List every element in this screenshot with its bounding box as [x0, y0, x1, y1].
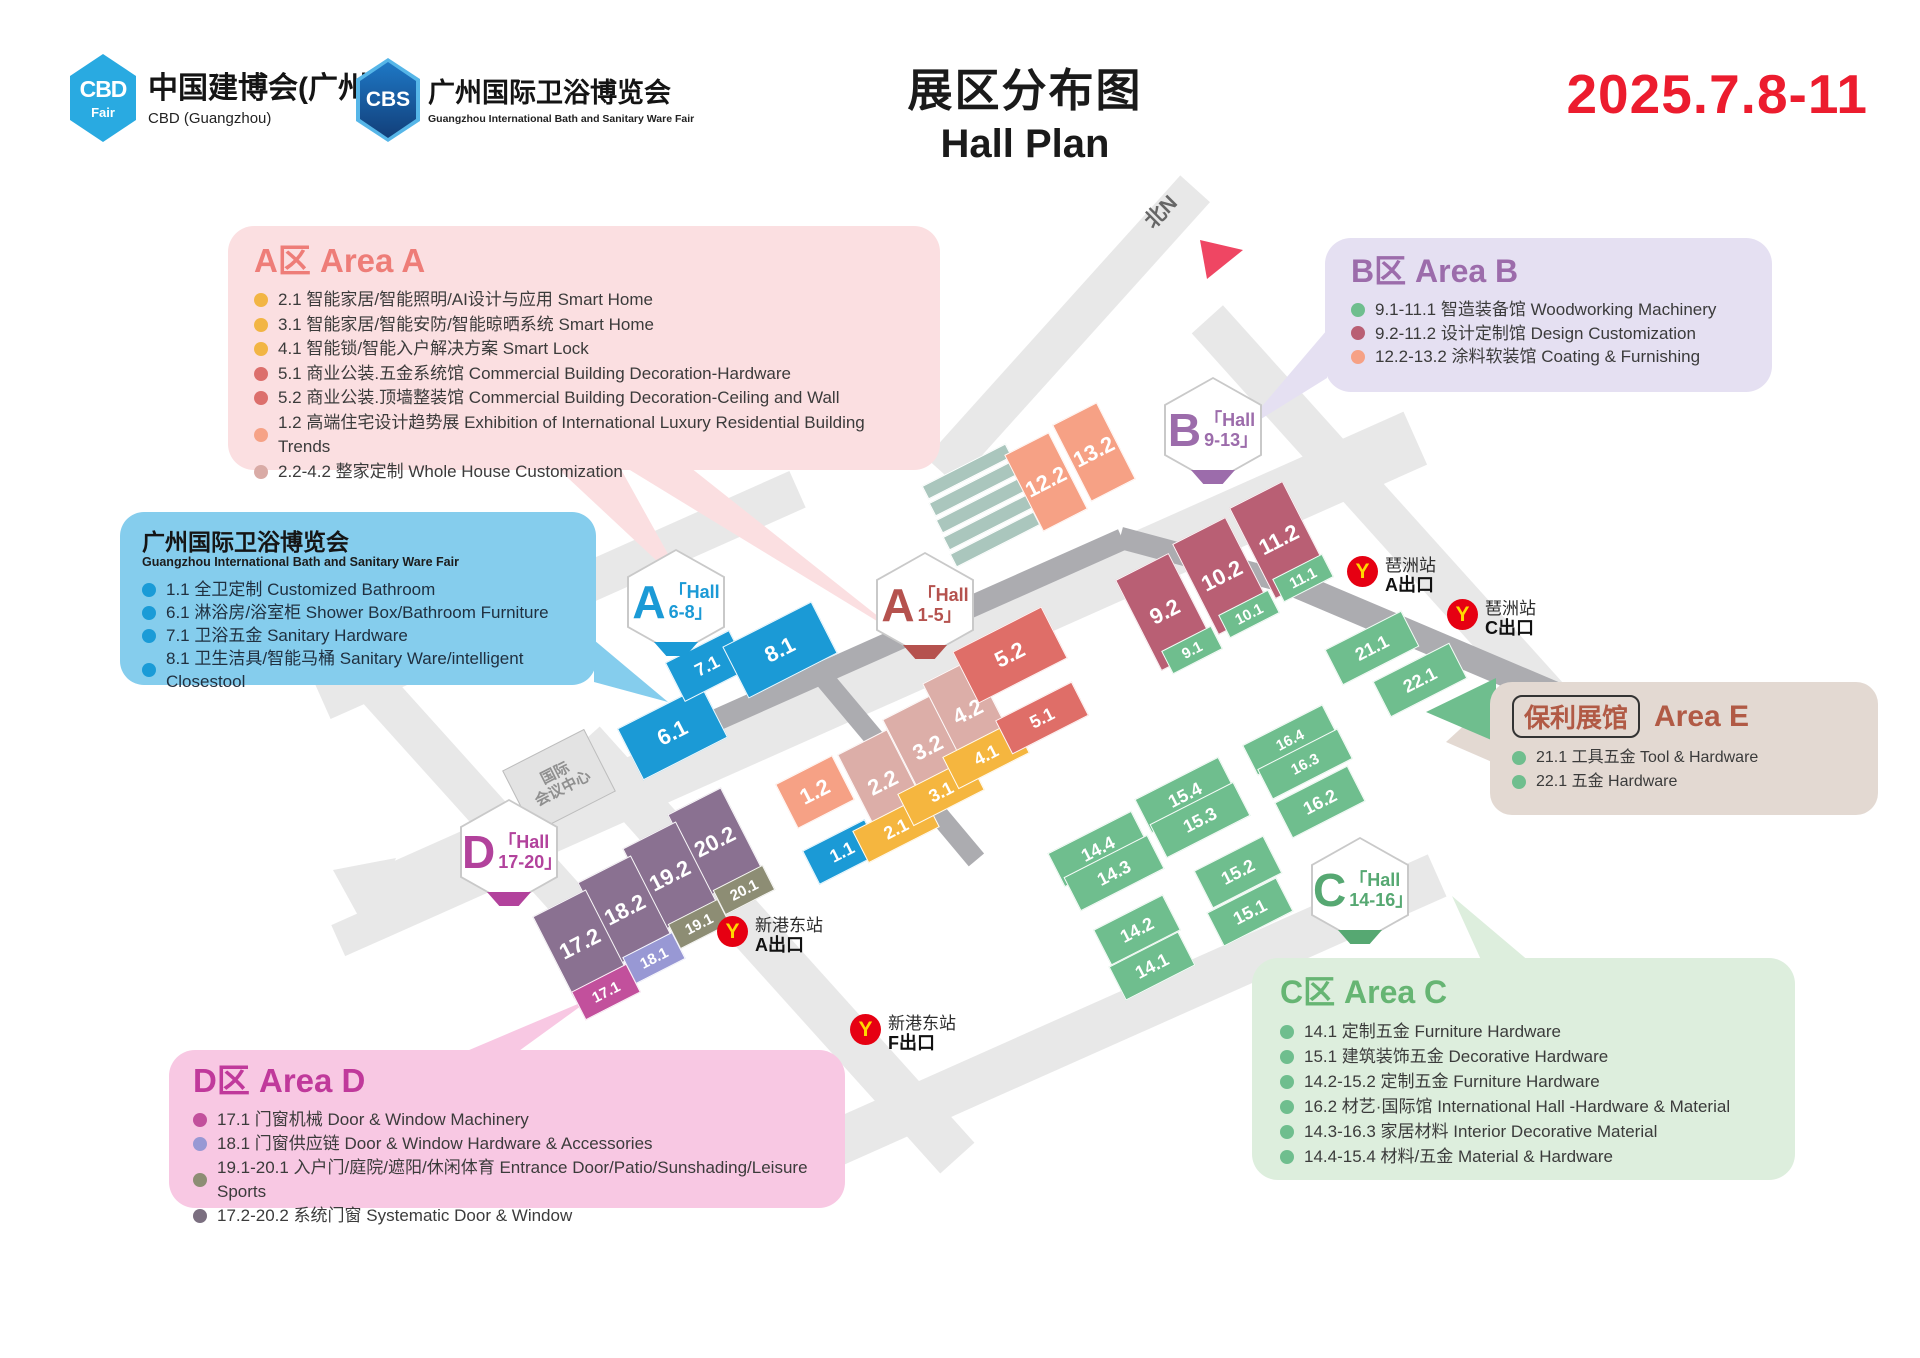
- metro-exit-新港东站-A出口: Y新港东站A出口: [717, 916, 823, 956]
- hall-badge-face: A「Hall1-5」: [878, 554, 972, 656]
- legend-dot-icon: [1351, 350, 1365, 364]
- legend-item: 1.1 全卫定制 Customized Bathroom: [142, 578, 574, 601]
- legend-dot-icon: [254, 428, 268, 442]
- legend-item: 2.2-4.2 整家定制 Whole House Customization: [254, 460, 914, 485]
- legend-item-label: 21.1 工具五金 Tool & Hardware: [1536, 746, 1758, 770]
- hall-block-6.1: 6.1: [617, 686, 728, 781]
- legend-item: 21.1 工具五金 Tool & Hardware: [1512, 746, 1856, 770]
- legend-item-label: 9.1-11.1 智造装备馆 Woodworking Machinery: [1375, 298, 1716, 322]
- legend-item-label: 15.1 建筑装饰五金 Decorative Hardware: [1304, 1044, 1608, 1069]
- legend-area-a-items: 2.1 智能家居/智能照明/AI设计与应用 Smart Home3.1 智能家居…: [254, 288, 914, 484]
- legend-dot-icon: [1351, 303, 1365, 317]
- legend-area-b-items: 9.1-11.1 智造装备馆 Woodworking Machinery9.2-…: [1351, 298, 1746, 369]
- cbd-logo-text: CBD: [80, 76, 127, 103]
- legend-dot-icon: [1280, 1075, 1294, 1089]
- hall-badge-range: 「Hall1-5」: [918, 585, 969, 625]
- cbs-logo-text: CBS: [360, 62, 416, 138]
- metro-exit-label: 琶洲站A出口: [1385, 556, 1436, 596]
- legend-item-label: 7.1 卫浴五金 Sanitary Hardware: [166, 624, 408, 647]
- legend-area-a: A区 Area A 2.1 智能家居/智能照明/AI设计与应用 Smart Ho…: [228, 226, 940, 470]
- legend-area-e-title: Area E: [1654, 700, 1749, 734]
- hall-badge-pointer: [1338, 930, 1382, 944]
- legend-item-label: 4.1 智能锁/智能入户解决方案 Smart Lock: [278, 337, 589, 362]
- metro-icon: Y: [1447, 599, 1478, 630]
- legend-item-label: 9.2-11.2 设计定制馆 Design Customization: [1375, 322, 1696, 346]
- hall-badge-range: 「Hall6-8」: [669, 582, 720, 622]
- legend-bath-subtitle: Guangzhou International Bath and Sanitar…: [142, 555, 574, 569]
- legend-item-label: 14.4-15.4 材料/五金 Material & Hardware: [1304, 1144, 1613, 1169]
- metro-exit-琶洲站-C出口: Y琶洲站C出口: [1447, 599, 1536, 639]
- legend-area-d-items: 17.1 门窗机械 Door & Window Machinery18.1 门窗…: [193, 1108, 821, 1228]
- legend-dot-icon: [1351, 326, 1365, 340]
- poly-hall-badge: 保利展馆: [1512, 695, 1640, 738]
- legend-item: 4.1 智能锁/智能入户解决方案 Smart Lock: [254, 337, 914, 362]
- legend-dot-icon: [1280, 1050, 1294, 1064]
- page-title: 展区分布图 Hall Plan: [850, 54, 1200, 167]
- cbs-title-block: 广州国际卫浴博览会 Guangzhou International Bath a…: [428, 76, 694, 125]
- cbd-title-block: 中国建博会(广州) CBD (Guangzhou): [148, 72, 378, 127]
- legend-item: 17.2-20.2 系统门窗 Systematic Door & Window: [193, 1204, 821, 1228]
- legend-item-label: 1.1 全卫定制 Customized Bathroom: [166, 578, 435, 601]
- legend-dot-icon: [1512, 751, 1526, 765]
- legend-item-label: 5.2 商业公装.顶墙整装馆 Commercial Building Decor…: [278, 386, 840, 411]
- legend-dot-icon: [254, 391, 268, 405]
- legend-item-label: 6.1 淋浴房/浴室柜 Shower Box/Bathroom Furnitur…: [166, 601, 549, 624]
- hall-badge-face: B「Hall9-13」: [1166, 379, 1260, 481]
- legend-item: 5.1 商业公装.五金系统馆 Commercial Building Decor…: [254, 362, 914, 387]
- north-label: 北N: [1137, 188, 1184, 235]
- legend-area-b: B区 Area B 9.1-11.1 智造装备馆 Woodworking Mac…: [1325, 238, 1772, 392]
- legend-item-label: 16.2 材艺·国际馆 International Hall -Hardware…: [1304, 1094, 1730, 1119]
- hall-badge-pointer: [487, 892, 531, 906]
- legend-item: 1.2 高端住宅设计趋势展 Exhibition of Internationa…: [254, 411, 914, 460]
- legend-item: 5.2 商业公装.顶墙整装馆 Commercial Building Decor…: [254, 386, 914, 411]
- legend-item: 18.1 门窗供应链 Door & Window Hardware & Acce…: [193, 1132, 821, 1156]
- metro-exit-label: 新港东站F出口: [888, 1014, 956, 1054]
- hall-plan-poster: 国际 会议中心 北N 6.17.18.11.11.22.23.24.22.13.…: [0, 0, 1920, 1358]
- hall-badge-letter: B: [1168, 407, 1201, 453]
- legend-area-d: D区 Area D 17.1 门窗机械 Door & Window Machin…: [169, 1050, 845, 1208]
- hall-badge-letter: D: [462, 829, 495, 875]
- legend-item: 7.1 卫浴五金 Sanitary Hardware: [142, 624, 574, 647]
- legend-area-e-header: 保利展馆 Area E: [1512, 695, 1856, 738]
- legend-dot-icon: [142, 606, 156, 620]
- legend-item-label: 17.1 门窗机械 Door & Window Machinery: [217, 1108, 529, 1132]
- legend-dot-icon: [193, 1137, 207, 1151]
- cbs-title: 广州国际卫浴博览会: [428, 76, 694, 110]
- page-title-en: Hall Plan: [850, 122, 1200, 167]
- legend-dot-icon: [142, 629, 156, 643]
- legend-item: 19.1-20.1 入户门/庭院/遮阳/休闲体育 Entrance Door/P…: [193, 1156, 821, 1204]
- legend-item-label: 5.1 商业公装.五金系统馆 Commercial Building Decor…: [278, 362, 791, 387]
- legend-area-c-title: C区 Area C: [1280, 973, 1767, 1011]
- metro-exit-琶洲站-A出口: Y琶洲站A出口: [1347, 556, 1436, 596]
- legend-dot-icon: [254, 465, 268, 479]
- legend-dot-icon: [142, 583, 156, 597]
- hall-badge-letter: C: [1313, 867, 1346, 913]
- legend-area-c-items: 14.1 定制五金 Furniture Hardware15.1 建筑装饰五金 …: [1280, 1019, 1767, 1169]
- legend-item: 14.4-15.4 材料/五金 Material & Hardware: [1280, 1144, 1767, 1169]
- legend-bath-fair: 广州国际卫浴博览会 Guangzhou International Bath a…: [120, 512, 596, 685]
- metro-exit-新港东站-F出口: Y新港东站F出口: [850, 1014, 956, 1054]
- legend-dot-icon: [193, 1209, 207, 1223]
- legend-item-label: 8.1 卫生洁具/智能马桶 Sanitary Ware/intelligent …: [166, 647, 574, 693]
- hall-block-5.1: 5.1: [995, 682, 1089, 755]
- legend-item: 16.2 材艺·国际馆 International Hall -Hardware…: [1280, 1094, 1767, 1119]
- hall-badge-letter: A: [881, 582, 914, 628]
- legend-item-label: 14.2-15.2 定制五金 Furniture Hardware: [1304, 1069, 1600, 1094]
- event-date: 2025.7.8-11: [1566, 62, 1868, 126]
- legend-dot-icon: [1512, 775, 1526, 789]
- legend-item: 14.2-15.2 定制五金 Furniture Hardware: [1280, 1069, 1767, 1094]
- metro-exit-label: 琶洲站C出口: [1485, 599, 1536, 639]
- page-title-zh: 展区分布图: [850, 54, 1200, 119]
- hall-badge-letter: A: [632, 579, 665, 625]
- legend-item-label: 19.1-20.1 入户门/庭院/遮阳/休闲体育 Entrance Door/P…: [217, 1156, 821, 1204]
- legend-item-label: 14.1 定制五金 Furniture Hardware: [1304, 1019, 1561, 1044]
- legend-item: 9.1-11.1 智造装备馆 Woodworking Machinery: [1351, 298, 1746, 322]
- legend-item: 14.1 定制五金 Furniture Hardware: [1280, 1019, 1767, 1044]
- legend-item-label: 22.1 五金 Hardware: [1536, 770, 1677, 794]
- cbs-subtitle: Guangzhou International Bath and Sanitar…: [428, 113, 694, 125]
- hall-badge-A-1-5: A「Hall1-5」: [876, 552, 974, 658]
- legend-item-label: 17.2-20.2 系统门窗 Systematic Door & Window: [217, 1204, 572, 1228]
- legend-bath-items: 1.1 全卫定制 Customized Bathroom6.1 淋浴房/浴室柜 …: [142, 578, 574, 693]
- legend-item: 2.1 智能家居/智能照明/AI设计与应用 Smart Home: [254, 288, 914, 313]
- hall-badge-pointer: [903, 645, 947, 659]
- legend-item: 14.3-16.3 家居材料 Interior Decorative Mater…: [1280, 1119, 1767, 1144]
- legend-area-d-title: D区 Area D: [193, 1062, 821, 1100]
- hall-badge-C-14-16: C「Hall14-16」: [1311, 837, 1409, 943]
- legend-area-b-title: B区 Area B: [1351, 252, 1746, 290]
- legend-item: 6.1 淋浴房/浴室柜 Shower Box/Bathroom Furnitur…: [142, 601, 574, 624]
- cbd-title: 中国建博会(广州): [148, 72, 378, 106]
- hall-badge-range: 「Hall17-20」: [498, 832, 556, 872]
- legend-item: 9.2-11.2 设计定制馆 Design Customization: [1351, 322, 1746, 346]
- legend-area-c: C区 Area C 14.1 定制五金 Furniture Hardware15…: [1252, 958, 1795, 1180]
- legend-item: 15.1 建筑装饰五金 Decorative Hardware: [1280, 1044, 1767, 1069]
- legend-dot-icon: [254, 367, 268, 381]
- legend-item: 12.2-13.2 涂料软装馆 Coating & Furnishing: [1351, 345, 1746, 369]
- hall-badge-B-9-13: B「Hall9-13」: [1164, 377, 1262, 483]
- metro-exit-label: 新港东站A出口: [755, 916, 823, 956]
- cbd-subtitle: CBD (Guangzhou): [148, 110, 378, 127]
- legend-dot-icon: [1280, 1025, 1294, 1039]
- hall-badge-range: 「Hall14-16」: [1349, 870, 1407, 910]
- legend-area-a-title: A区 Area A: [254, 242, 914, 280]
- legend-item-label: 12.2-13.2 涂料软装馆 Coating & Furnishing: [1375, 345, 1700, 369]
- legend-area-e-items: 21.1 工具五金 Tool & Hardware22.1 五金 Hardwar…: [1512, 746, 1856, 794]
- legend-dot-icon: [254, 293, 268, 307]
- metro-icon: Y: [850, 1014, 881, 1045]
- legend-item: 8.1 卫生洁具/智能马桶 Sanitary Ware/intelligent …: [142, 647, 574, 693]
- legend-area-e: 保利展馆 Area E 21.1 工具五金 Tool & Hardware22.…: [1490, 682, 1878, 815]
- legend-item-label: 1.2 高端住宅设计趋势展 Exhibition of Internationa…: [278, 411, 914, 460]
- metro-icon: Y: [1347, 556, 1378, 587]
- legend-item: 17.1 门窗机械 Door & Window Machinery: [193, 1108, 821, 1132]
- legend-dot-icon: [193, 1113, 207, 1127]
- legend-dot-icon: [142, 663, 156, 677]
- legend-item: 22.1 五金 Hardware: [1512, 770, 1856, 794]
- hall-badge-pointer: [1191, 470, 1235, 484]
- legend-item-label: 2.2-4.2 整家定制 Whole House Customization: [278, 460, 623, 485]
- hall-block-8.1: 8.1: [722, 601, 837, 698]
- legend-dot-icon: [1280, 1125, 1294, 1139]
- legend-item-label: 3.1 智能家居/智能安防/智能晾晒系统 Smart Home: [278, 313, 654, 338]
- legend-item-label: 14.3-16.3 家居材料 Interior Decorative Mater…: [1304, 1119, 1657, 1144]
- legend-dot-icon: [254, 342, 268, 356]
- hall-badge-face: A「Hall6-8」: [629, 551, 723, 653]
- hall-badge-face: C「Hall14-16」: [1313, 839, 1407, 941]
- legend-item: 3.1 智能家居/智能安防/智能晾晒系统 Smart Home: [254, 313, 914, 338]
- hall-badge-range: 「Hall9-13」: [1204, 410, 1258, 450]
- legend-item-label: 2.1 智能家居/智能照明/AI设计与应用 Smart Home: [278, 288, 653, 313]
- metro-icon: Y: [717, 916, 748, 947]
- cbd-logo-subtext: Fair: [91, 105, 115, 120]
- legend-dot-icon: [1280, 1100, 1294, 1114]
- legend-dot-icon: [254, 318, 268, 332]
- legend-dot-icon: [193, 1173, 207, 1187]
- legend-bath-title: 广州国际卫浴博览会: [142, 529, 574, 555]
- legend-dot-icon: [1280, 1150, 1294, 1164]
- legend-item-label: 18.1 门窗供应链 Door & Window Hardware & Acce…: [217, 1132, 653, 1156]
